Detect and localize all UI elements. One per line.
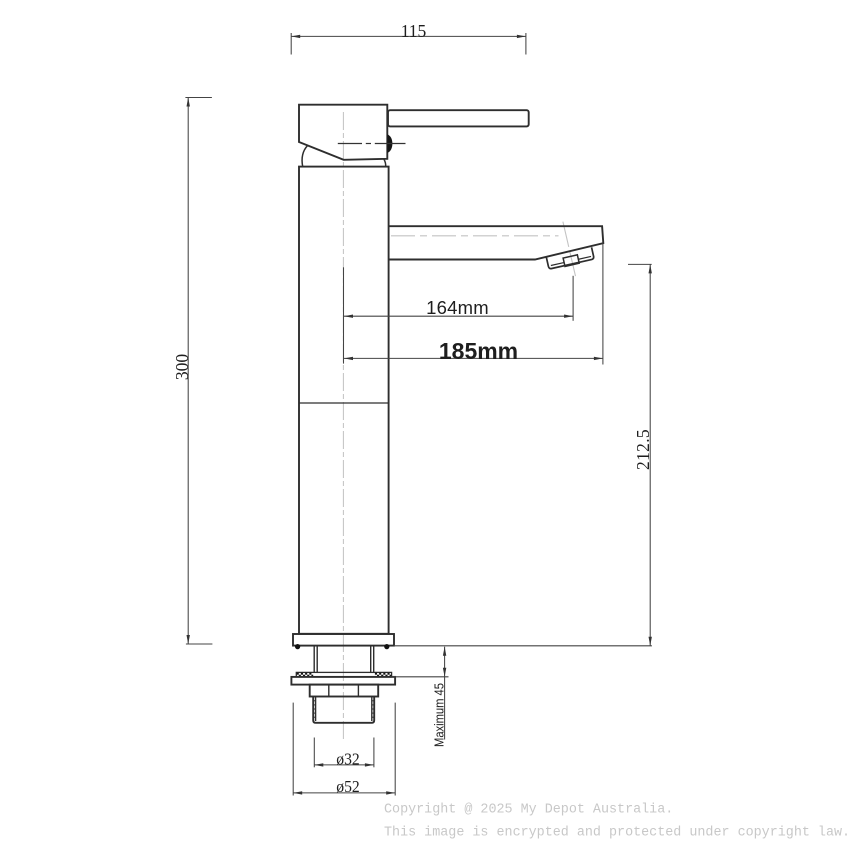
svg-text:ø32: ø32 — [336, 749, 360, 768]
svg-text:185mm: 185mm — [439, 338, 518, 364]
svg-text:Copyright @ 2025 My Depot Aust: Copyright @ 2025 My Depot Australia. — [384, 802, 673, 817]
svg-text:ø52: ø52 — [336, 777, 360, 796]
svg-text:Maximum 45: Maximum 45 — [432, 683, 447, 747]
svg-text:212.5: 212.5 — [633, 429, 653, 470]
svg-text:This image is encrypted and pr: This image is encrypted and protected un… — [384, 825, 850, 840]
svg-text:164mm: 164mm — [426, 297, 489, 318]
svg-text:115: 115 — [401, 21, 427, 41]
svg-text:300: 300 — [172, 354, 192, 381]
